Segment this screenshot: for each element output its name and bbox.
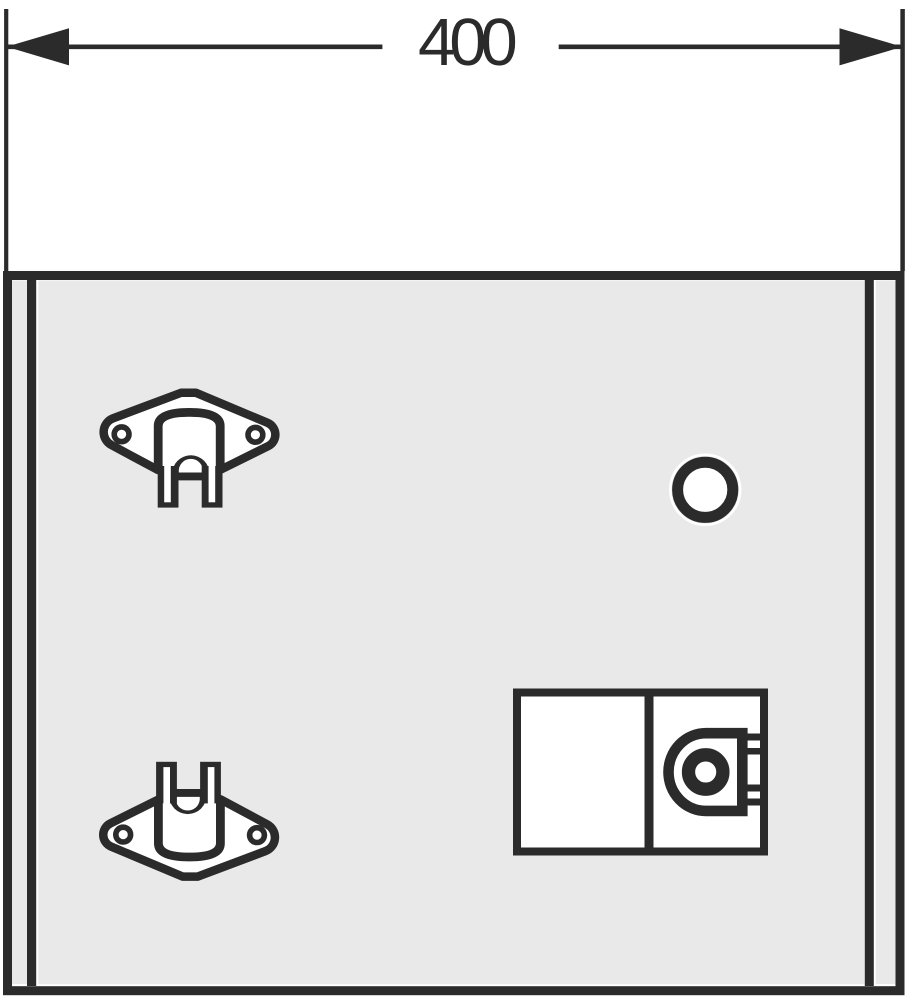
svg-text:400: 400 bbox=[418, 5, 516, 80]
